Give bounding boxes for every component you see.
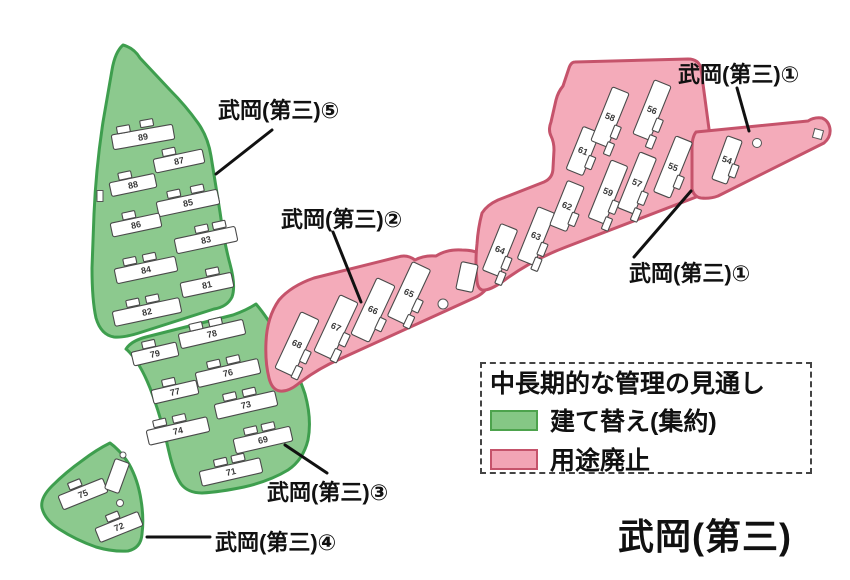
label-daisan-5: 武岡(第三)⑤: [218, 98, 339, 123]
label-daisan-1-upper-line: [737, 88, 749, 131]
legend-row-rebuild: 建て替え(集約): [490, 402, 802, 438]
map-hole: [97, 191, 103, 202]
building-number: 81: [201, 279, 213, 291]
region-daisan-1-pink-east: [692, 118, 830, 198]
building-number: 85: [182, 197, 194, 209]
site-map: 89878885868384818278797677737469717572 6…: [0, 0, 850, 580]
label-daisan-5-line: [216, 130, 272, 174]
map-hole: [117, 500, 124, 507]
building-number: 89: [137, 131, 149, 143]
page-title: 武岡(第三): [618, 508, 792, 560]
legend-row-discontinue: 用途廃止: [490, 441, 802, 477]
label-daisan-2: 武岡(第三)②: [281, 207, 402, 232]
building-number: 86: [130, 219, 142, 231]
legend-swatch-rebuild: [490, 410, 538, 431]
building-number: 87: [173, 155, 185, 167]
legend: 中長期的な管理の見通し 建て替え(集約) 用途廃止: [480, 362, 812, 474]
legend-swatch-discontinue: [490, 449, 538, 470]
map-hole: [753, 139, 762, 148]
label-daisan-1-lower: 武岡(第三)①: [629, 261, 750, 286]
building-number: 83: [200, 234, 212, 246]
building-number: 84: [140, 264, 152, 276]
legend-title: 中長期的な管理の見通し: [490, 369, 802, 399]
label-daisan-3: 武岡(第三)③: [267, 480, 388, 505]
building-number: 88: [127, 179, 139, 191]
legend-label-rebuild: 建て替え(集約): [550, 402, 717, 438]
map-hole: [120, 452, 126, 458]
map-hole: [438, 299, 448, 309]
legend-label-discontinue: 用途廃止: [550, 441, 650, 477]
building-number: 82: [141, 306, 153, 318]
map-hole: [812, 128, 823, 139]
label-daisan-1-upper: 武岡(第三)①: [678, 62, 799, 87]
label-daisan-4: 武岡(第三)④: [215, 530, 336, 555]
